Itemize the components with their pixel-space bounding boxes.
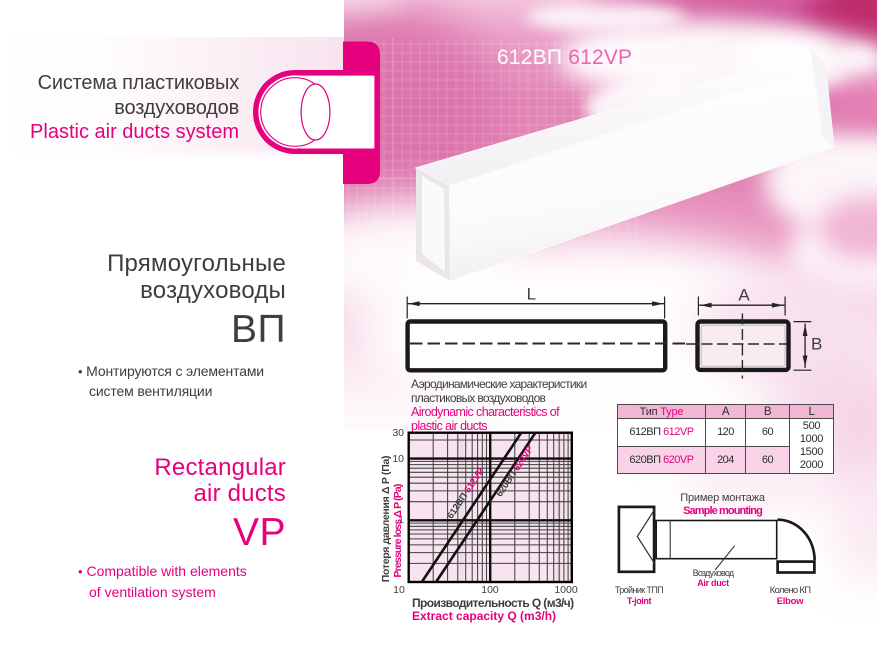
svg-text:L: L bbox=[527, 285, 536, 304]
svg-text:A: A bbox=[738, 286, 750, 305]
svg-text:B: B bbox=[811, 335, 822, 354]
